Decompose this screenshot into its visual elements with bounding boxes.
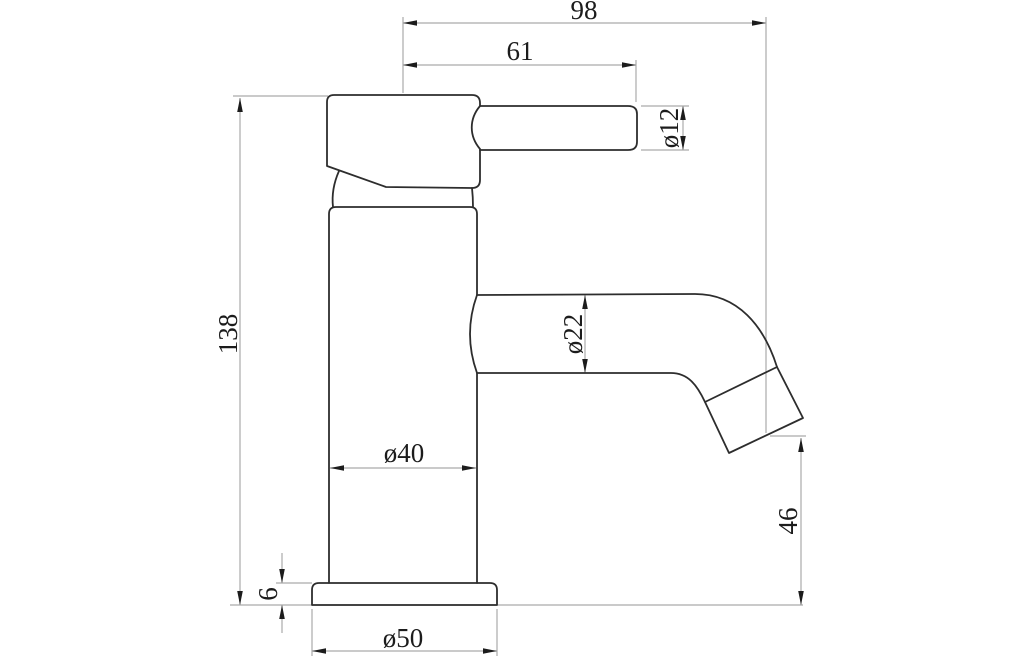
dim-spout-diameter-label: ø22	[558, 314, 588, 355]
technical-drawing-canvas: 98 61 ø12 138 ø22 ø40 46 6 ø50	[0, 0, 1024, 657]
dim-handle-diameter-label: ø12	[654, 108, 684, 149]
dim-handle-reach-label: 61	[507, 36, 534, 66]
faucet-lever-skirt-left	[333, 171, 339, 207]
dim-body-diameter-label: ø40	[384, 438, 425, 468]
dim-spout-clearance-label: 46	[773, 508, 803, 535]
faucet-dimension-drawing: 98 61 ø12 138 ø22 ø40 46 6 ø50	[0, 0, 1024, 657]
dim-overall-reach-label: 98	[571, 0, 598, 25]
dim-base-height-label: 6	[253, 587, 283, 601]
dim-total-height-label: 138	[213, 314, 243, 355]
faucet-lever-skirt-right	[472, 188, 473, 207]
dim-base-diameter-label: ø50	[383, 623, 424, 653]
